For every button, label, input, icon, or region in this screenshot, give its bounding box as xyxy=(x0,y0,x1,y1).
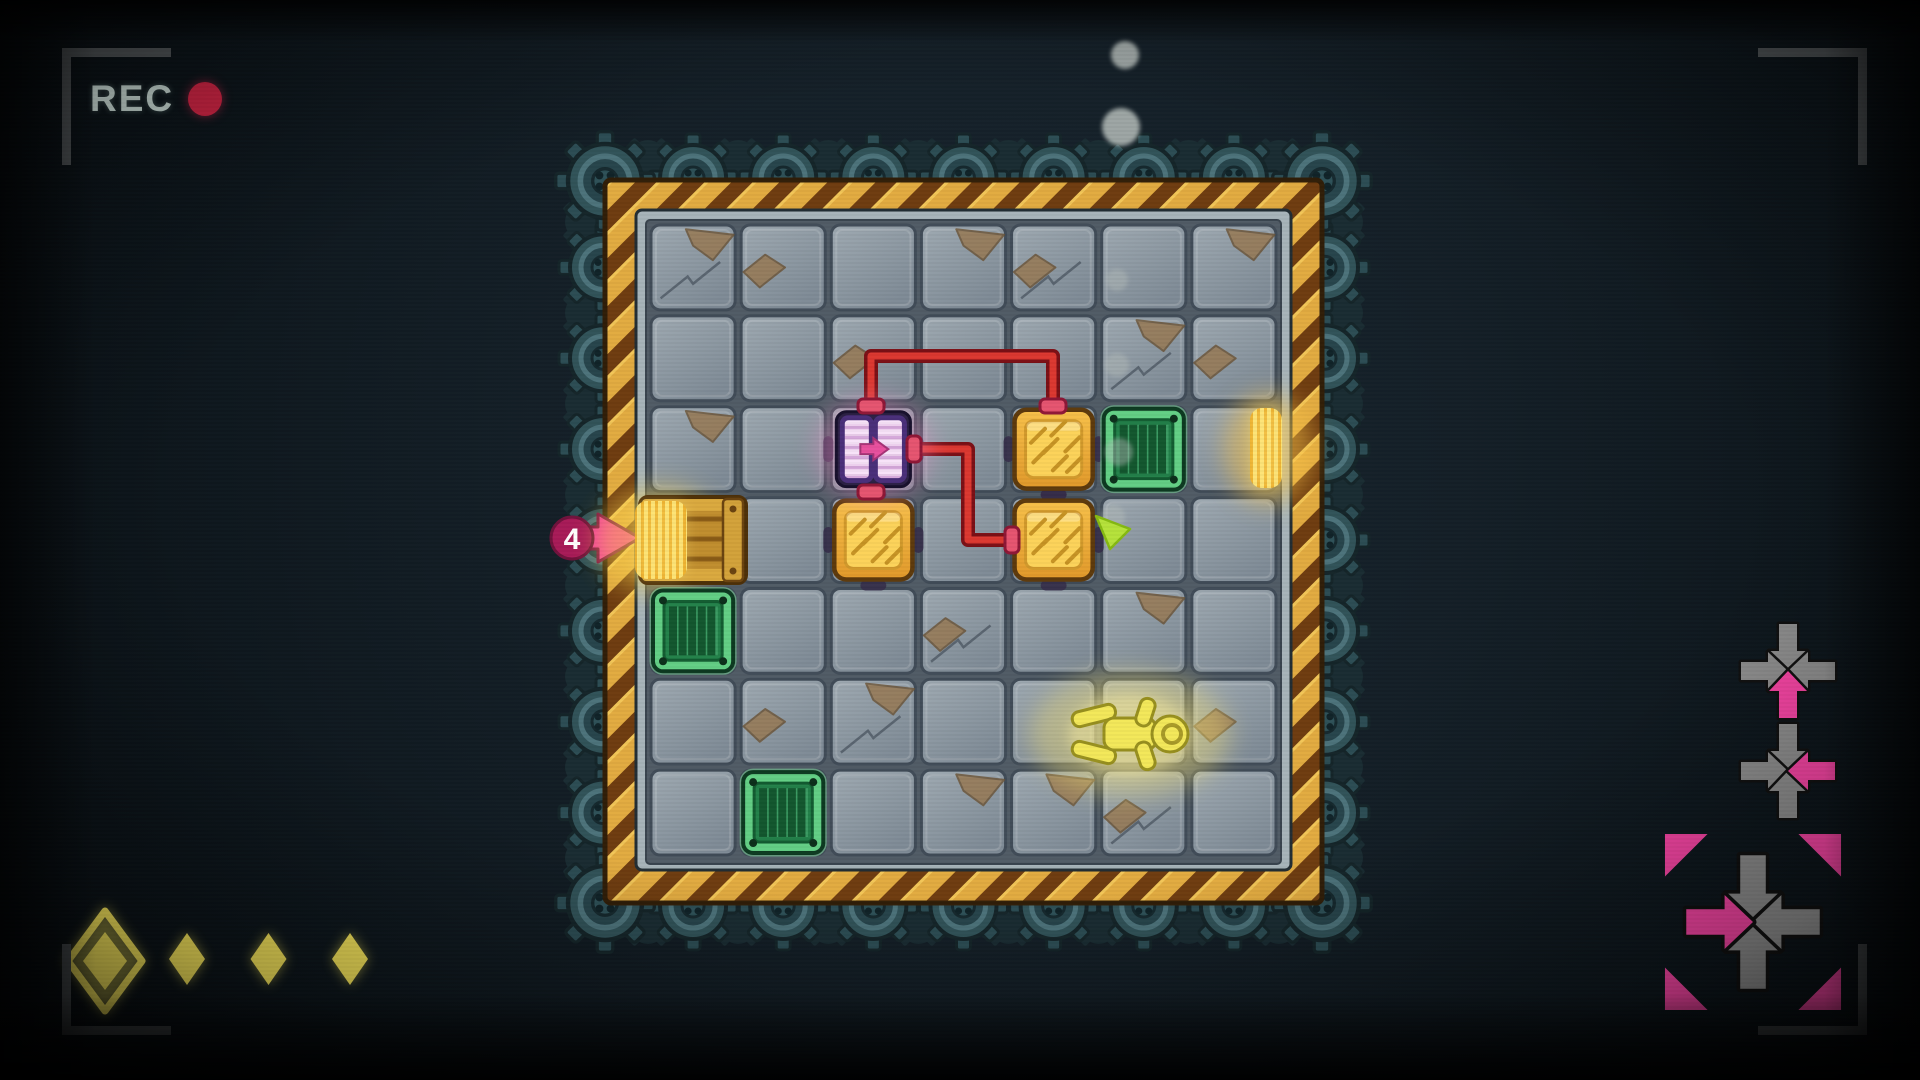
grid-cell[interactable] xyxy=(831,588,915,673)
smoke-particle-icon xyxy=(1105,438,1133,466)
rec-indicator: REC xyxy=(90,78,222,120)
grid-cell[interactable] xyxy=(1192,588,1276,673)
grid-cell[interactable] xyxy=(741,316,825,401)
rec-label: REC xyxy=(90,78,174,120)
game-screen: 4 REC xyxy=(0,0,1920,1080)
grid-cell[interactable] xyxy=(831,770,915,855)
input-step-right xyxy=(1665,834,1841,1010)
grid-cell[interactable] xyxy=(741,407,825,492)
green-crate[interactable] xyxy=(741,770,825,855)
frame-corner-icon xyxy=(1798,967,1841,1010)
frame-corner-icon xyxy=(1665,967,1708,1010)
diamond-icon xyxy=(251,933,287,985)
orange-crate[interactable] xyxy=(834,501,912,580)
grid-cell[interactable] xyxy=(921,679,1005,764)
green-crate[interactable] xyxy=(651,588,735,673)
input-step-left xyxy=(1741,724,1835,818)
grid-cell[interactable] xyxy=(1012,588,1096,673)
frame-corner-icon xyxy=(1798,834,1841,877)
input-history xyxy=(1665,624,1841,1010)
collectible-diamonds xyxy=(64,905,368,1017)
input-step-up xyxy=(1741,624,1835,718)
player-character[interactable] xyxy=(1030,672,1230,796)
diamond-icon xyxy=(332,933,368,985)
orange-crate[interactable] xyxy=(1015,501,1093,580)
orange-crate[interactable] xyxy=(1015,410,1093,489)
grid-cell[interactable] xyxy=(1192,498,1276,583)
rec-dot-icon xyxy=(188,82,222,116)
entry-count: 4 xyxy=(564,523,581,556)
wire-pad xyxy=(907,436,921,462)
grid-cell[interactable] xyxy=(651,679,735,764)
diamond-icon xyxy=(169,933,205,985)
smoke-particle-icon xyxy=(1111,41,1139,69)
wood-crate[interactable] xyxy=(596,486,746,594)
exit-glow xyxy=(1224,393,1312,505)
wire-pad xyxy=(1040,399,1066,413)
grid-cell[interactable] xyxy=(651,316,735,401)
game-scene[interactable]: 4 xyxy=(0,0,1920,1080)
grid-cell[interactable] xyxy=(1192,770,1276,855)
grid-cell[interactable] xyxy=(1102,225,1186,310)
smoke-particle-icon xyxy=(1102,108,1140,146)
grid-cell[interactable] xyxy=(741,588,825,673)
grid-cell[interactable] xyxy=(831,225,915,310)
grid-cell[interactable] xyxy=(651,770,735,855)
smoke-particle-icon xyxy=(1105,353,1129,377)
wire-pad xyxy=(858,399,884,413)
wire-pad xyxy=(1005,527,1019,553)
wire-pad xyxy=(858,485,884,499)
smoke-particle-icon xyxy=(1106,269,1128,291)
grid-cell[interactable] xyxy=(741,498,825,583)
frame-corner-icon xyxy=(1665,834,1708,877)
